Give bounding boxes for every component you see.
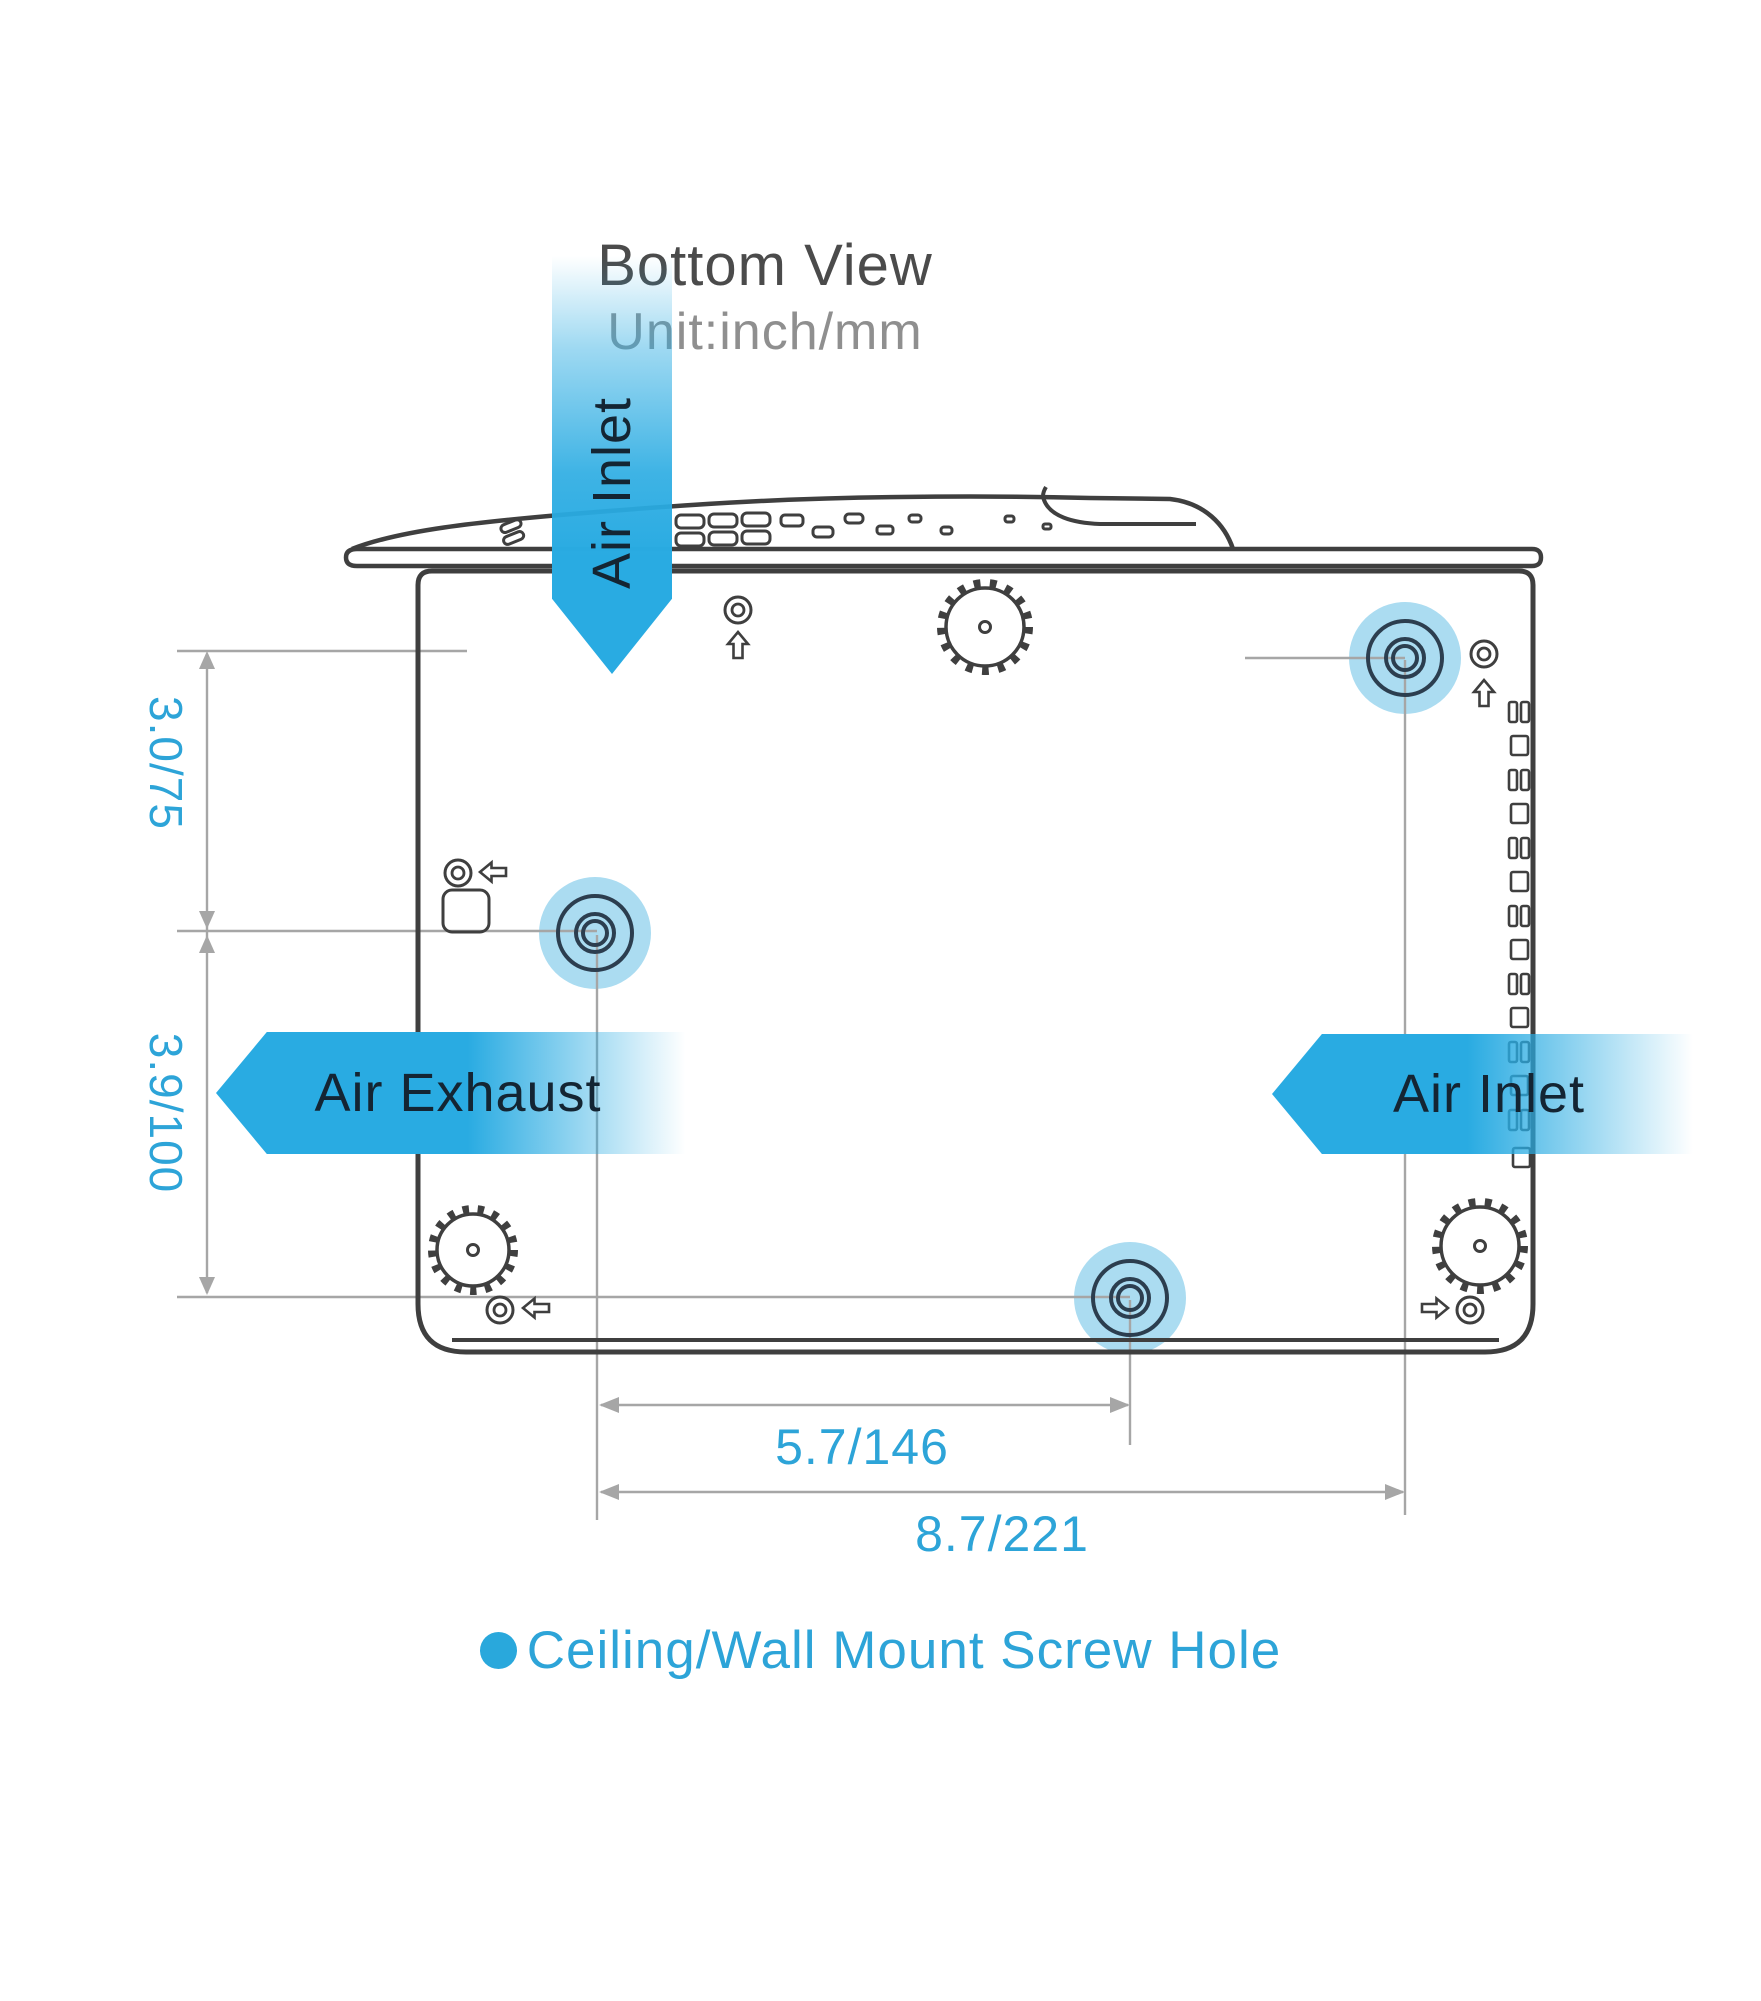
dimension-label-3-9-100: 3.9/100 [116,1003,216,1223]
screw-icon-bottom-left [487,1297,549,1323]
left-arrow-icon [480,863,506,882]
screw-icon-mid-left [443,860,506,932]
bottom-view-diagram: Bottom View Unit:inch/mm Air Inlet Air E… [0,0,1761,2001]
adjustable-foot-gear-bottom-right [1436,1202,1524,1290]
screw-icon-bottom-right [1422,1297,1483,1323]
air-inlet-right-label: Air Inlet [1393,1063,1585,1125]
screw-highlight-left [539,877,651,989]
dimension-label-3-0-75: 3.0/75 [116,653,216,873]
right-arrow-icon [1422,1299,1448,1318]
legend: Ceiling/Wall Mount Screw Hole [0,1620,1761,1681]
units-note: Unit:inch/mm [460,302,1070,362]
dimension-label-8-7-221: 8.7/221 [842,1505,1162,1563]
screw-icon-top-right [1471,641,1497,706]
air-inlet-top-label: Air Inlet [581,397,643,589]
screw-hole-highlights [539,602,1461,1354]
dimension-label-5-7-146: 5.7/146 [702,1418,1022,1476]
up-arrow-icon [728,632,748,658]
air-exhaust-label: Air Exhaust [314,1062,601,1124]
legend-dot-icon [480,1632,517,1669]
legend-label: Ceiling/Wall Mount Screw Hole [527,1620,1282,1681]
screw-icon-top-left [725,597,751,658]
up-arrow-icon [1474,680,1494,706]
cable-slot-outline [443,890,489,932]
air-exhaust-arrow: Air Exhaust [216,1032,700,1154]
page-title: Bottom View [460,232,1070,299]
adjustable-foot-gear-bottom-left [432,1209,514,1291]
air-inlet-right-arrow: Air Inlet [1272,1034,1706,1154]
left-arrow-icon [523,1299,549,1318]
adjustable-foot-gear-top [941,583,1029,671]
air-inlet-top-arrow: Air Inlet [552,256,672,674]
projector-line-art [0,0,1761,2001]
